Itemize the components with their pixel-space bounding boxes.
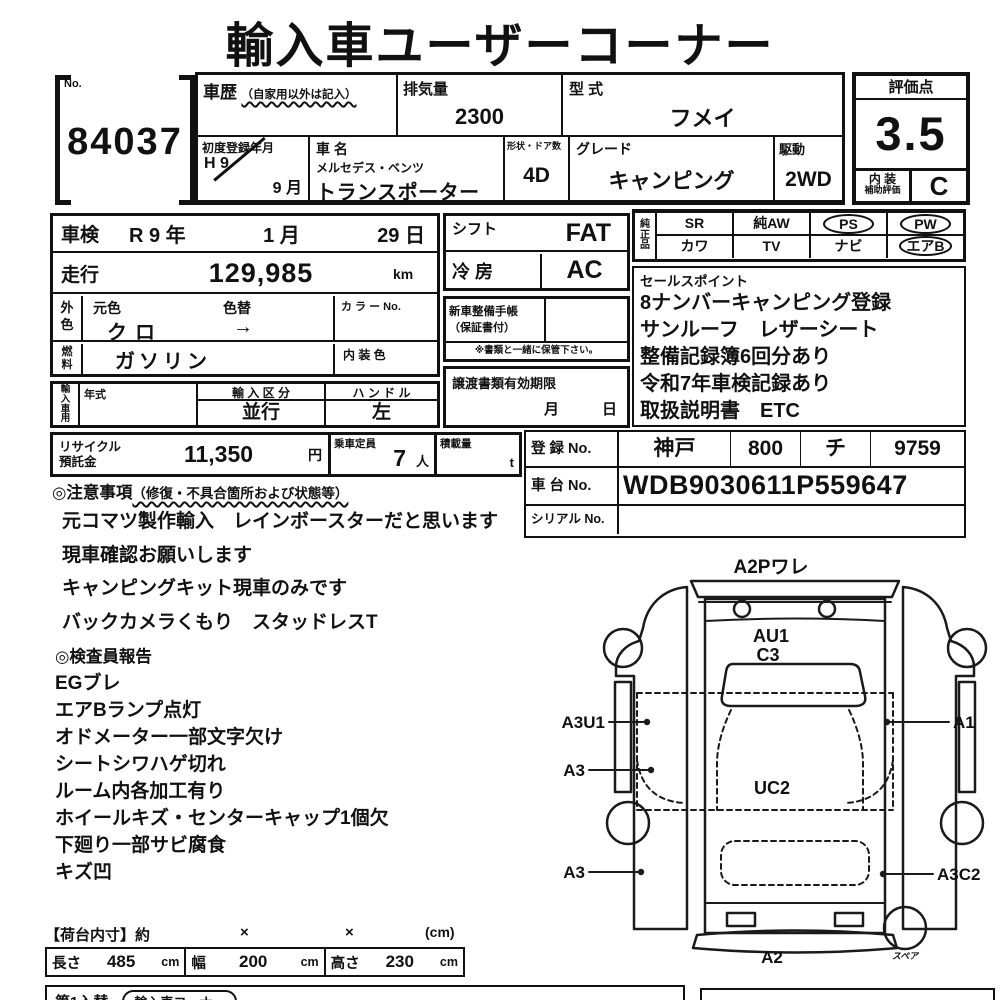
cell-drive: 駆動 2WD <box>775 135 842 202</box>
genuine-pw-circled: PW <box>900 214 951 234</box>
wheel-front-right <box>948 629 986 667</box>
shift-ac-box: シフト FAT 冷 房 AC <box>443 213 630 291</box>
shift-value: FAT <box>497 219 621 248</box>
year-cell: 年式 <box>80 384 198 425</box>
row-shaken: 車検 R 9 年 1 月 29 日 <box>53 216 437 253</box>
car-maker: メルセデス・ベンツ <box>316 159 497 176</box>
orig-color-value: クロ <box>107 316 163 345</box>
recycle-value: 11,350 <box>129 441 308 468</box>
diagram-label-spare: スペア <box>892 951 920 961</box>
cargo-width-cell: 幅 200 cm <box>186 949 325 975</box>
diagram-label-a3u1: A3U1 <box>562 713 605 732</box>
row-shift: シフト FAT <box>446 216 627 252</box>
shift-label: シフト <box>452 216 497 239</box>
genuine-navi: ナビ <box>811 236 888 258</box>
score-header: 評価点 <box>856 76 966 100</box>
registration-kana: チ <box>801 432 871 466</box>
booklet-label: 新車整備手帳 （保証書付） <box>446 299 546 341</box>
inspector-line: EGブレ <box>55 670 525 697</box>
diagram-label-a2: A2 <box>761 948 783 965</box>
details-table: 車検 R 9 年 1 月 29 日 走行 129,985 km 外 色 元色 色… <box>50 213 440 377</box>
lot-number-label: No. <box>64 78 82 90</box>
color-no-cell: カ ラ ー No. <box>335 296 437 340</box>
body-doors-label: 形状・ドア数 <box>507 139 566 152</box>
import-label-cell: 輸入車用 <box>53 384 80 425</box>
color-change-value: → <box>233 316 253 339</box>
car-damage-diagram: A2Pワレ AU1 C3 UC2 A3U1 A3 A3 A1 A3C2 A2 ス… <box>535 545 995 965</box>
cell-body-doors: 形状・ドア数 4D <box>505 135 570 202</box>
diagram-label-c3: C3 <box>756 645 779 665</box>
genuine-aw: 純AW <box>734 213 811 234</box>
transfer-month: 月 <box>544 398 559 419</box>
caution-line: 元コマツ製作輸入 レインボースターだと思います <box>62 505 530 539</box>
interior-color-label: 内 装 色 <box>343 346 386 363</box>
recycle-label-1: リサイクル <box>59 440 129 454</box>
car-name-label: 車 名 <box>316 139 497 159</box>
exterior-color-cell: 元色 色替 クロ → <box>83 296 335 340</box>
registration-table: 登 録 No. 神戸 800 チ 9759 車 台 No. WDB9030611… <box>524 430 966 538</box>
cell-history: 車歴 （自家用以外は記入） <box>198 75 398 135</box>
vehicle-info-table: 車歴 （自家用以外は記入） 排気量 2300 型 式 フメイ 初度登録年月 H … <box>195 72 845 205</box>
car-name-value: トランスポーター <box>316 176 497 202</box>
load-unit: t <box>510 455 514 470</box>
displacement-value: 2300 <box>403 104 556 130</box>
washer-circle-left <box>734 601 750 617</box>
transfer-label: 譲渡書類有効期限 <box>446 369 627 396</box>
cell-displacement: 排気量 2300 <box>398 75 563 135</box>
grade-label: グレード <box>576 139 767 159</box>
genuine-kawa: カワ <box>657 236 734 258</box>
shaken-month: 1 月 <box>263 219 300 248</box>
wheel-rear-left <box>607 802 649 844</box>
score-box: 評価点 3.5 内 装 補助評価 C <box>852 72 970 205</box>
capacity-label: 乗車定員 <box>334 436 376 451</box>
row-ac: 冷 房 AC <box>446 254 627 288</box>
cargo-height-cell: 高さ 230 cm <box>326 949 463 975</box>
caution-line: バックカメラくもり スタッドレスT <box>62 606 530 640</box>
import-label: 輸入車用 <box>61 385 71 425</box>
lot-number-value: 84037 <box>55 121 195 164</box>
sales-points-header: セールスポイント <box>640 270 958 290</box>
cell-model-code: 型 式 フメイ <box>563 75 842 135</box>
rocker-panel-right <box>959 682 975 792</box>
inspector-line: 下廻り一部サビ腐食 <box>55 832 525 859</box>
front-bumper <box>691 581 899 597</box>
cargo-length-cell: 長さ 485 cm <box>47 949 186 975</box>
color-no-label: カ ラ ー No. <box>341 298 401 314</box>
row-registration-no: 登 録 No. 神戸 800 チ 9759 <box>526 432 964 468</box>
import-class-value: 並行 <box>198 401 324 424</box>
cargo-unit-note: (cm) <box>425 924 455 940</box>
side-panel-left <box>616 587 687 929</box>
cautions-header: ◎注意事項 <box>52 484 132 502</box>
body-doors-value: 4D <box>507 164 566 188</box>
registration-number: 9759 <box>871 432 964 466</box>
drive-value: 2WD <box>779 168 838 192</box>
diagram-label-a3-lower: A3 <box>563 863 585 882</box>
row-exterior-color: 外 色 元色 色替 クロ → カ ラ ー No. <box>53 296 437 342</box>
shaken-day: 29 日 <box>377 219 425 248</box>
model-code-value: フメイ <box>569 101 836 133</box>
handle-label: ハ ン ド ル <box>326 384 437 401</box>
ac-value: AC <box>542 254 627 288</box>
drive-label: 駆動 <box>779 139 838 158</box>
diagram-label-a2p-crack: A2Pワレ <box>734 557 809 578</box>
diagram-label-au1: AU1 <box>753 626 789 646</box>
genuine-tv: TV <box>734 236 811 258</box>
capacity-unit: 人 <box>416 451 429 470</box>
rocker-panel-left <box>615 682 631 792</box>
sales-point-line: 整備記録簿6回分あり <box>640 344 958 371</box>
page-title: 輸入車ユーザーコーナー <box>0 6 1000 76</box>
fuel-cell: ガソリン <box>83 344 335 374</box>
transfer-day: 日 <box>602 398 617 419</box>
score-value: 3.5 <box>856 100 966 170</box>
booklet-box: 新車整備手帳 （保証書付） ※書類と一緒に保管下さい。 <box>443 296 630 362</box>
year-label: 年式 <box>84 386 106 402</box>
bottom-partial-right <box>700 988 995 1000</box>
recycle-label-2: 預託金 <box>59 455 129 469</box>
fuel-value: ガソリン <box>115 345 211 374</box>
bottom-capsule-text: 輸入車コーナー <box>122 990 237 1000</box>
interior-score-row: 内 装 補助評価 C <box>856 168 966 201</box>
exterior-color-label: 外 色 <box>53 296 83 340</box>
mileage-label: 走行 <box>61 260 129 287</box>
washer-circle-right <box>819 601 835 617</box>
capacity-value: 7 <box>393 445 406 472</box>
color-change-label: 色替 <box>223 298 251 318</box>
chassis-no-value: WDB9030611P559647 <box>619 468 964 504</box>
tail-light-left <box>727 913 755 926</box>
rear-window-dashed <box>721 841 869 885</box>
cargo-height-value: 230 <box>360 952 440 972</box>
diagram-label-uc2: UC2 <box>754 778 790 798</box>
registration-no-label: 登 録 No. <box>526 432 619 466</box>
bottom-section-text: 第1入替 <box>55 994 108 1000</box>
inspector-line: ホイールキズ・センターキャップ1個欠 <box>55 805 525 832</box>
inspector-line: オドメーター一部文字欠け <box>55 724 525 751</box>
diagram-label-a3-mid: A3 <box>563 761 585 780</box>
inspector-header: ◎検査員報告 <box>55 643 525 667</box>
recycle-cell: リサイクル 預託金 11,350 円 <box>53 435 331 474</box>
capacity-cell: 乗車定員 7 人 <box>331 435 437 474</box>
cautions-header-note: （修復・不具合箇所および状態等） <box>132 486 348 501</box>
sales-point-line: サンルーフ レザーシート <box>640 317 958 344</box>
shaken-label: 車検 <box>61 220 129 247</box>
sales-point-line: 8ナンバーキャンピング登録 <box>640 290 958 317</box>
history-label: 車歴 <box>203 83 237 102</box>
row-fuel: 燃 料 ガソリン 内 装 色 <box>53 344 437 374</box>
fuel-label: 燃 料 <box>53 344 83 374</box>
cargo-header: 【荷台内寸】約 <box>45 924 150 945</box>
diagram-label-a3c2: A3C2 <box>937 865 980 884</box>
caution-line: 現車確認お願いします <box>62 539 530 573</box>
genuine-equipment-table: 純正品 SR 純AW PS PW カワ TV ナビ エアB <box>632 209 966 262</box>
cautions-section: ◎注意事項（修復・不具合箇所および状態等） 元コマツ製作輸入 レインボースターだ… <box>52 479 530 639</box>
model-code-label: 型 式 <box>569 78 836 99</box>
cargo-table: 長さ 485 cm 幅 200 cm 高さ 230 cm <box>45 947 465 977</box>
interior-score-label: 内 装 補助評価 <box>856 171 912 201</box>
shaken-era: R 9 年 <box>129 219 186 248</box>
row-serial-no: シリアル No. <box>526 506 964 534</box>
cell-car-name: 車 名 メルセデス・ベンツ トランスポーター <box>310 135 505 202</box>
registration-region: 神戸 <box>619 432 731 466</box>
interior-score-grade: C <box>912 171 966 201</box>
cell-grade: グレード キャンピング <box>570 135 775 202</box>
serial-no-label: シリアル No. <box>526 506 619 534</box>
cell-first-registration: 初度登録年月 H 9 9 月 <box>198 135 310 202</box>
orig-color-label: 元色 <box>93 298 121 318</box>
windshield <box>722 664 866 706</box>
import-class-cell: 輸 入 区 分 並行 <box>198 384 326 425</box>
genuine-airb-circled: エアB <box>899 236 951 256</box>
transfer-box: 譲渡書類有効期限 月 日 <box>443 366 630 428</box>
wheel-front-left <box>604 629 642 667</box>
load-cell: 積載量 t <box>437 435 519 474</box>
auction-sheet: 輸入車ユーザーコーナー No. 84037 車歴 （自家用以外は記入） 排気量 … <box>0 0 1000 1000</box>
recycle-unit: 円 <box>308 445 322 465</box>
inspector-section: ◎検査員報告 EGブレ エアBランプ点灯 オドメーター一部文字欠け シートシワハ… <box>55 643 525 886</box>
mileage-unit: km <box>393 266 429 282</box>
wheel-rear-right <box>941 802 983 844</box>
interior-color-cell: 内 装 色 <box>335 344 437 374</box>
inspector-line: キズ凹 <box>55 859 525 886</box>
genuine-label: 純正品 <box>640 220 651 252</box>
ac-label: 冷 房 <box>446 254 542 288</box>
booklet-value-cell <box>546 299 627 341</box>
van-body-outline <box>705 599 885 933</box>
load-label: 積載量 <box>440 436 472 451</box>
cargo-width-value: 200 <box>206 952 301 972</box>
inspector-line: ルーム内各加工有り <box>55 778 525 805</box>
mileage-value: 129,985 <box>129 258 393 289</box>
handle-value: 左 <box>326 401 437 424</box>
caution-line: キャンピングキット現車のみです <box>62 572 530 606</box>
sales-point-line: 取扱説明書 ETC <box>640 398 958 425</box>
sales-point-line: 令和7年車検記録あり <box>640 371 958 398</box>
import-table: 輸入車用 年式 輸 入 区 分 並行 ハ ン ド ル 左 <box>50 381 440 428</box>
recycle-row: リサイクル 預託金 11,350 円 乗車定員 7 人 積載量 t <box>50 432 522 477</box>
sales-points-box: セールスポイント 8ナンバーキャンピング登録 サンルーフ レザーシート 整備記録… <box>632 266 966 427</box>
inspector-line: エアBランプ点灯 <box>55 697 525 724</box>
registration-class: 800 <box>731 432 801 466</box>
handle-cell: ハ ン ド ル 左 <box>326 384 437 425</box>
genuine-sr: SR <box>657 213 734 234</box>
genuine-label-cell: 純正品 <box>635 213 657 259</box>
chassis-no-label: 車 台 No. <box>526 468 619 504</box>
cargo-header-row: 【荷台内寸】約 × × (cm) <box>45 924 465 946</box>
lot-number-block: No. 84037 <box>55 75 195 205</box>
first-reg-month: 9 月 <box>273 174 302 198</box>
cargo-length-value: 485 <box>81 952 161 972</box>
serial-no-value <box>619 506 964 534</box>
row-chassis-no: 車 台 No. WDB9030611P559647 <box>526 468 964 506</box>
bottom-partial-left: 第1入替輸入車コーナー <box>45 985 685 1000</box>
diagram-label-a1: A1 <box>953 713 975 732</box>
history-note: （自家用以外は記入） <box>241 89 356 101</box>
import-class-label: 輸 入 区 分 <box>198 384 324 401</box>
displacement-label: 排気量 <box>403 78 556 99</box>
row-mileage: 走行 129,985 km <box>53 255 437 294</box>
booklet-note: ※書類と一緒に保管下さい。 <box>446 341 627 359</box>
inspector-line: シートシワハゲ切れ <box>55 751 525 778</box>
cargo-sep2: × <box>345 924 354 941</box>
grade-value: キャンピング <box>576 165 767 195</box>
genuine-ps-circled: PS <box>823 214 874 234</box>
tail-light-right <box>835 913 863 926</box>
cargo-sep1: × <box>240 924 249 941</box>
